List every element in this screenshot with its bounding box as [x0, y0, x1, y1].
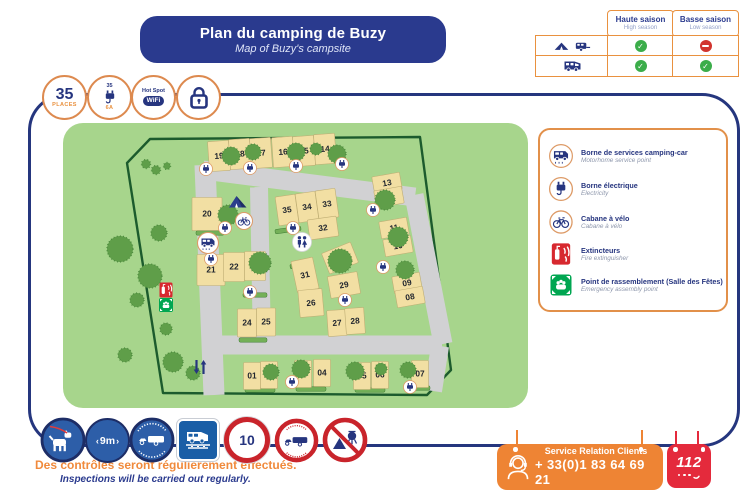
tree-icon — [310, 143, 322, 155]
season-table: Haute saison High season Basse saison Lo… — [536, 11, 738, 76]
no-camping-fire-sign — [322, 417, 368, 468]
customer-service-label: Service Relation Clients — [545, 446, 648, 457]
customer-service-phone: + 33(0)1 83 64 69 21 — [535, 457, 657, 488]
assembly-point-icon — [548, 273, 574, 297]
status-mark — [635, 40, 647, 52]
electric-point-icon — [336, 158, 349, 171]
customer-service-agent-icon — [505, 453, 531, 481]
emergency-stem — [697, 431, 699, 445]
tree-icon — [152, 166, 161, 175]
connector-dot — [513, 447, 518, 452]
toilets-icon — [293, 233, 312, 252]
campsite-plot: 22 — [224, 253, 245, 282]
tent-high-status — [607, 35, 673, 56]
tree-icon — [292, 360, 310, 378]
plot-number: 27 — [332, 317, 342, 328]
tree-icon — [107, 236, 133, 262]
campsite-plot: 25 — [257, 308, 276, 336]
campsite-plot: 27 — [327, 309, 348, 336]
motorhome-service-icon — [548, 143, 574, 169]
campsite-map-page: Plan du camping de Buzy Map of Buzy's ca… — [0, 0, 753, 500]
bike-shed-icon — [548, 209, 574, 235]
legend-item-electric: Borne électrique Electricity — [548, 176, 718, 202]
fire-extinguisher-icon — [160, 283, 173, 298]
high-season-header: Haute saison High season — [607, 10, 673, 36]
legend-item-assembly: Point de rassemblement (Salle des Fêtes)… — [548, 273, 718, 297]
tree-icon — [118, 348, 132, 362]
plot-number: 21 — [206, 265, 216, 275]
max-length-9m-sign: ‹9m› — [85, 418, 130, 463]
places-badge: 35 PLACES — [42, 75, 87, 120]
electric-point-icon — [377, 261, 390, 274]
tree-icon — [400, 362, 416, 378]
plot-number: 07 — [415, 369, 425, 379]
page-title: Plan du camping de Buzy Map of Buzy's ca… — [140, 16, 446, 63]
campsite-plot: 32 — [307, 216, 339, 240]
connector-dot — [701, 447, 706, 452]
hedge — [239, 338, 267, 342]
tent-caravan-row — [535, 35, 608, 56]
legend-item-extinguisher: Extincteurs Fire extinguisher — [548, 242, 718, 266]
campsite-plot: 33 — [315, 188, 339, 220]
electric-point-icon — [548, 176, 574, 202]
tent-icon — [229, 196, 247, 208]
electric-point-icon — [339, 294, 352, 307]
electric-point-icon — [200, 163, 213, 176]
status-mark — [700, 40, 712, 52]
tree-icon — [222, 147, 240, 165]
campsite-plot: 31 — [291, 257, 319, 293]
electric-point-icon — [244, 286, 257, 299]
electric-point-icon — [205, 253, 218, 266]
plot-number: 24 — [242, 318, 252, 328]
tree-icon — [130, 293, 144, 307]
plot-number: 22 — [229, 262, 239, 272]
plot-number: 34 — [302, 201, 313, 212]
emergency-number: 112 — [676, 454, 701, 471]
status-mark — [700, 60, 712, 72]
motorhome-service-area-icon — [183, 425, 213, 455]
tree-icon — [160, 323, 172, 335]
electric-badge: 35 6A — [87, 75, 132, 120]
tree-icon — [388, 227, 408, 247]
speed-limit-sign: 10 — [224, 417, 270, 463]
campsite-plot: 35 — [275, 194, 299, 226]
motorhome-icon — [562, 59, 583, 73]
electric-point-icon — [404, 381, 417, 394]
plot-number: 20 — [202, 209, 212, 219]
tent-low-status — [672, 35, 738, 56]
no-car-caravan-sign — [274, 418, 319, 468]
bike-shed-icon — [236, 213, 253, 230]
tree-icon — [186, 366, 200, 380]
electric-point-icon — [290, 160, 303, 173]
emergency-number-box: 112 — [667, 444, 711, 488]
plot-number: 04 — [317, 368, 327, 378]
season-table-blank-cell — [536, 11, 608, 36]
dog-on-leash-sign — [40, 417, 86, 468]
tree-icon — [328, 249, 352, 273]
car-caravan-allowed-sign — [129, 417, 175, 468]
tree-icon — [164, 163, 171, 170]
legend-panel: Borne de services camping-car Motorhome … — [538, 128, 728, 312]
motorhome-high-status — [607, 55, 673, 76]
plot-number: 25 — [261, 317, 271, 327]
connector-dot — [639, 447, 644, 452]
title-english: Map of Buzy's campsite — [235, 43, 351, 55]
tree-icon — [375, 363, 387, 375]
tree-icon — [287, 143, 305, 161]
tree-icon — [396, 261, 414, 279]
motorhome-service-icon — [198, 233, 219, 254]
legend-item-bike: Cabane à vélo Cabane à vélo — [548, 209, 718, 235]
campsite-plot: 28 — [345, 307, 366, 334]
motorhome-row — [535, 55, 608, 76]
electric-point-icon — [244, 162, 257, 175]
tree-icon — [151, 225, 167, 241]
customer-service-box: Service Relation Clients + 33(0)1 83 64 … — [497, 444, 663, 490]
wifi-icon: WiFi — [143, 96, 165, 107]
title-french: Plan du camping de Buzy — [200, 25, 386, 42]
electric-point-icon — [286, 376, 299, 389]
plot-number: 33 — [322, 198, 333, 209]
electric-point-icon — [287, 222, 300, 235]
campsite-plot: 01 — [244, 363, 261, 390]
contact-stem — [516, 430, 518, 445]
motorhome-low-status — [672, 55, 738, 76]
plot-number: 26 — [306, 297, 316, 308]
tree-icon — [346, 362, 364, 380]
contact-stem — [641, 430, 643, 445]
status-mark — [635, 60, 647, 72]
tree-icon — [263, 364, 279, 380]
electric-point-icon — [219, 222, 232, 235]
campsite-plot: 34 — [295, 191, 319, 223]
connector-dot — [673, 447, 678, 452]
emergency-stem — [675, 431, 677, 445]
low-season-header: Basse saison Low season — [672, 10, 738, 36]
tent-icon — [553, 40, 570, 53]
plot-number: 28 — [350, 315, 360, 326]
caravan-icon — [573, 40, 592, 53]
electric-point-icon — [367, 204, 380, 217]
tree-icon — [245, 144, 261, 160]
wifi-hotspot-badge: Hot Spot WiFi — [131, 75, 176, 120]
tree-icon — [142, 160, 151, 169]
phone-icon — [678, 472, 700, 479]
campsite-plot: 24 — [238, 309, 257, 337]
campsite-map: 1918171615142021222324253534333231302926… — [63, 123, 528, 408]
tree-icon — [138, 264, 162, 288]
left-arrow-icon: ‹ — [96, 436, 99, 446]
plot-number: 01 — [247, 371, 257, 381]
two-way-arrow-icon — [194, 360, 207, 374]
lock-badge — [176, 75, 221, 120]
electric-plug-icon — [101, 89, 119, 106]
assembly-point-icon — [159, 298, 173, 312]
campsite-map-panel: 1918171615142021222324253534333231302926… — [63, 123, 528, 408]
campsite-plot: 04 — [314, 360, 331, 387]
lock-icon — [188, 86, 210, 110]
motorhome-service-area-sign — [177, 419, 219, 461]
plot-number: 32 — [318, 222, 329, 233]
plot-number: 35 — [282, 204, 293, 215]
tree-icon — [163, 352, 183, 372]
fire-extinguisher-icon — [548, 242, 574, 266]
plot-number: 16 — [278, 146, 288, 157]
tree-icon — [249, 252, 271, 274]
campsite-plot: 26 — [298, 289, 324, 318]
right-arrow-icon: › — [116, 436, 119, 446]
inspection-note-english: Inspections will be carried out regularl… — [60, 474, 251, 485]
legend-item-service: Borne de services camping-car Motorhome … — [548, 143, 718, 169]
